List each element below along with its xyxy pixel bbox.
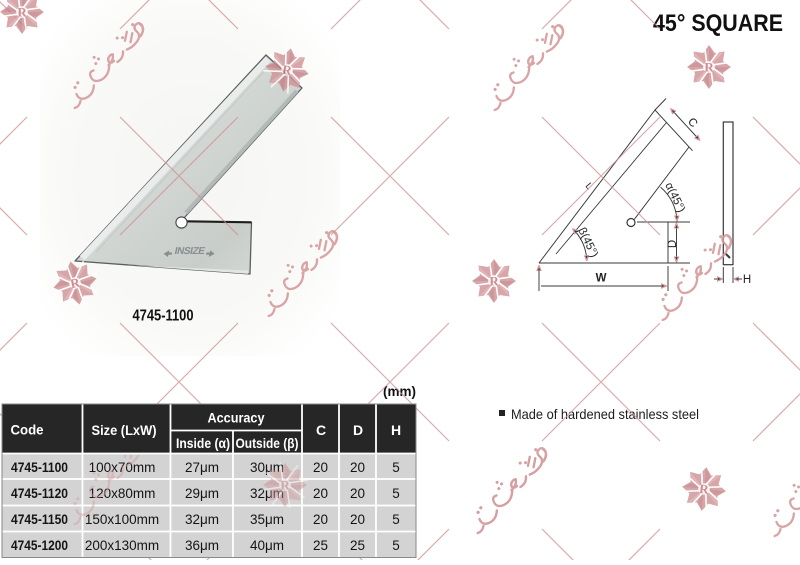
svg-text:5: 5 [392, 538, 400, 553]
svg-text:W: W [596, 273, 607, 285]
svg-text:40μm: 40μm [250, 538, 284, 553]
svg-text:20: 20 [350, 460, 365, 475]
svg-text:D: D [667, 240, 679, 248]
svg-text:5: 5 [392, 512, 400, 527]
svg-text:INSIZE: INSIZE [173, 246, 206, 257]
svg-text:Made of hardened stainless ste: Made of hardened stainless steel [511, 406, 699, 422]
svg-text:25: 25 [313, 538, 328, 553]
svg-text:5: 5 [392, 486, 400, 501]
svg-text:H: H [391, 422, 401, 438]
svg-text:36μm: 36μm [185, 538, 219, 553]
svg-text:4745-1120: 4745-1120 [11, 486, 68, 501]
svg-text:4745-1100: 4745-1100 [133, 308, 194, 325]
svg-text:20: 20 [313, 460, 328, 475]
svg-text:20: 20 [350, 486, 365, 501]
svg-text:32μm: 32μm [185, 512, 219, 527]
svg-text:H: H [743, 274, 751, 286]
svg-text:20: 20 [350, 512, 365, 527]
svg-text:27μm: 27μm [185, 460, 219, 475]
svg-text:45° SQUARE: 45° SQUARE [653, 10, 783, 37]
svg-text:29μm: 29μm [185, 486, 219, 501]
svg-text:150x100mm: 150x100mm [85, 512, 159, 527]
svg-text:D: D [353, 422, 363, 438]
svg-text:Size (LxW): Size (LxW) [92, 422, 157, 438]
svg-text:C: C [316, 422, 326, 438]
svg-text:20: 20 [313, 512, 328, 527]
svg-text:Outside (β): Outside (β) [236, 436, 299, 451]
svg-text:25: 25 [350, 538, 365, 553]
svg-text:200x130mm: 200x130mm [85, 538, 159, 553]
svg-text:20: 20 [313, 486, 328, 501]
svg-text:120x80mm: 120x80mm [89, 486, 156, 501]
svg-text:4745-1150: 4745-1150 [11, 512, 68, 527]
svg-text:Inside (α): Inside (α) [176, 436, 230, 451]
svg-text:35μm: 35μm [250, 512, 284, 527]
svg-text:Accuracy: Accuracy [208, 410, 265, 426]
svg-text:4745-1100: 4745-1100 [11, 460, 68, 475]
svg-text:Code: Code [11, 422, 44, 438]
svg-text:4745-1200: 4745-1200 [11, 538, 68, 553]
svg-text:5: 5 [392, 460, 400, 475]
